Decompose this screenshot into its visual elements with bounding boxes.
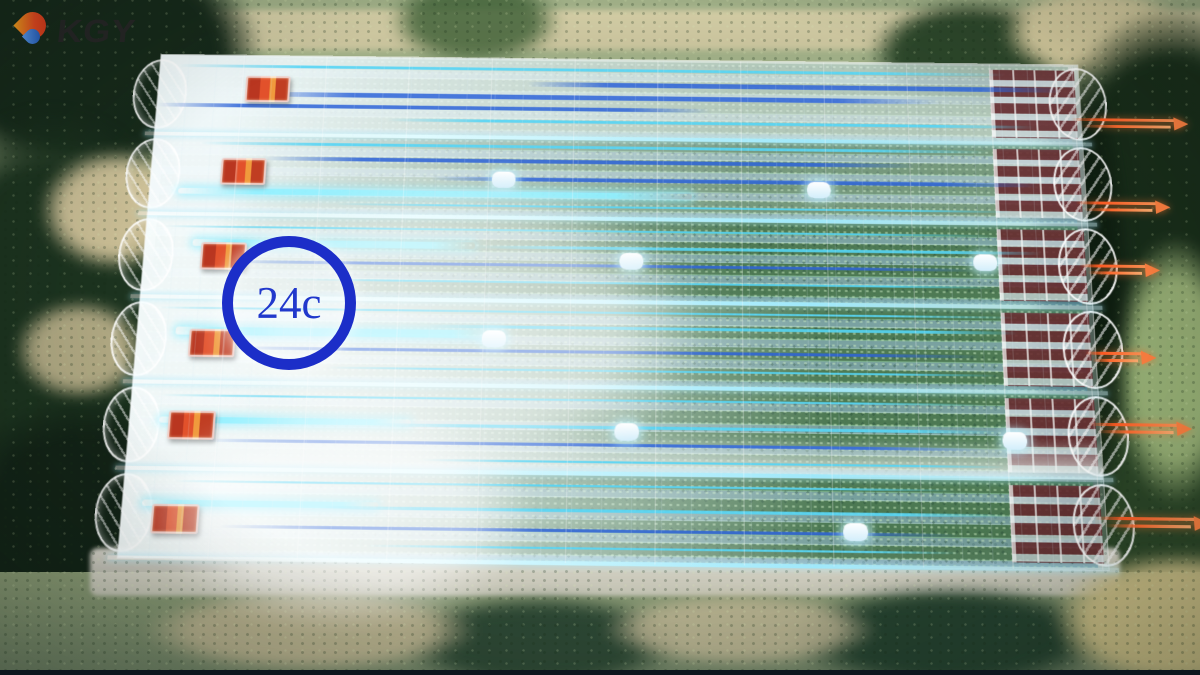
arrow-head-icon bbox=[1141, 351, 1157, 365]
exhaust-arrow bbox=[1076, 199, 1171, 214]
arrow-head-icon bbox=[1194, 516, 1200, 531]
circulation-fan bbox=[619, 253, 643, 270]
circulation-fan bbox=[492, 171, 516, 187]
heater-unit bbox=[167, 411, 216, 440]
arrow-head-icon bbox=[1176, 422, 1192, 437]
tree-top-middle bbox=[390, 0, 560, 65]
exhaust-arrow bbox=[1095, 515, 1200, 531]
arrow-head-icon bbox=[1155, 200, 1171, 214]
heater-unit bbox=[245, 76, 291, 102]
circulation-fan bbox=[1002, 432, 1027, 450]
greenhouse-bay bbox=[155, 55, 1083, 144]
exhaust-arrow bbox=[1080, 263, 1161, 278]
airflow-streak bbox=[419, 459, 1005, 468]
letterbox-bar bbox=[0, 670, 1200, 675]
greenhouse-bay bbox=[118, 468, 1109, 570]
exhaust-arrow bbox=[1071, 116, 1189, 130]
heater-unit bbox=[149, 504, 199, 534]
circulation-fan bbox=[973, 254, 998, 271]
circulation-fan bbox=[843, 523, 868, 541]
kgy-logo: KGY bbox=[14, 8, 136, 54]
greenhouse-bay bbox=[148, 133, 1088, 225]
scrub-sand-patch bbox=[140, 588, 480, 673]
flame-drop-icon bbox=[14, 8, 50, 54]
circulation-fan bbox=[481, 331, 506, 348]
temperature-badge: 24c bbox=[222, 236, 356, 370]
scrub-sand-patch-2 bbox=[600, 592, 880, 667]
circulation-fan bbox=[614, 423, 639, 441]
circulation-fan bbox=[807, 181, 831, 198]
exhaust-arrow bbox=[1090, 420, 1193, 436]
temperature-value: 24c bbox=[257, 281, 322, 326]
arrow-head-icon bbox=[1145, 263, 1161, 277]
airflow-streak bbox=[206, 438, 985, 451]
arrow-head-icon bbox=[1173, 117, 1189, 130]
exhaust-arrow bbox=[1085, 350, 1157, 365]
heater-unit bbox=[220, 158, 267, 185]
logo-text: KGY bbox=[55, 15, 137, 47]
video-frame: 24c KGY bbox=[0, 0, 1200, 675]
end-wall-haze bbox=[118, 468, 1109, 570]
